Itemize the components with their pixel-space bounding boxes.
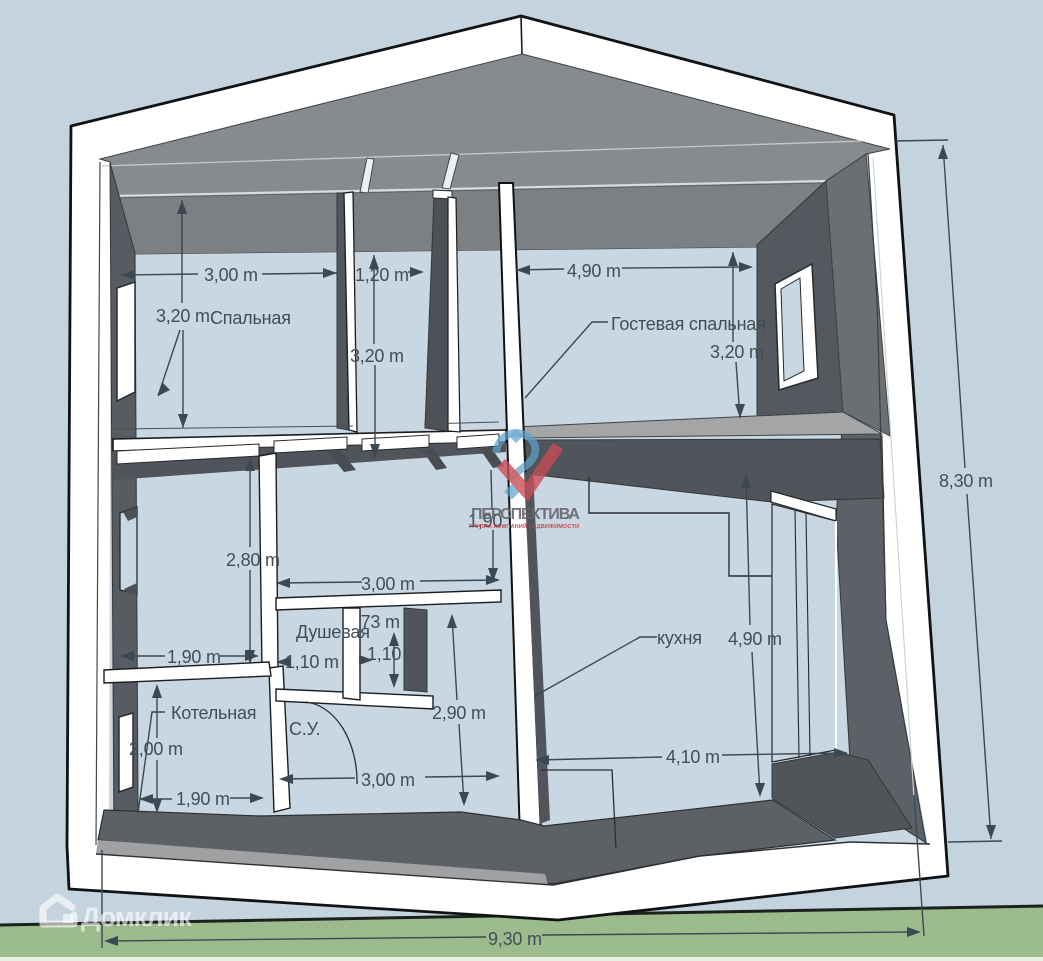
svg-text:4,90 m: 4,90 m [728, 629, 782, 649]
svg-text:1,10: 1,10 [367, 644, 401, 664]
svg-text:С.У.: С.У. [289, 719, 320, 739]
svg-text:Душевая: Душевая [296, 622, 370, 642]
svg-text:3,00 m: 3,00 m [361, 770, 415, 790]
svg-text:8,30 m: 8,30 m [939, 471, 993, 491]
svg-text:Гостевая спальная: Гостевая спальная [611, 314, 766, 334]
svg-text:2,90 m: 2,90 m [432, 703, 486, 723]
svg-text:1,10 m: 1,10 m [285, 652, 339, 672]
svg-text:3,00 m: 3,00 m [204, 265, 258, 285]
svg-text:ГРУППА КОМПАНИЙ НЕДВИЖИМОСТИ: ГРУППА КОМПАНИЙ НЕДВИЖИМОСТИ [469, 522, 579, 530]
svg-text:9,30 m: 9,30 m [488, 929, 542, 949]
svg-text:Домклик: Домклик [81, 902, 192, 932]
svg-text:кухня: кухня [657, 628, 702, 648]
svg-text:4,10 m: 4,10 m [666, 747, 720, 767]
svg-text:3,20 m: 3,20 m [156, 306, 210, 326]
svg-text:4,90 m: 4,90 m [567, 261, 621, 281]
svg-text:2,00 m: 2,00 m [129, 739, 183, 759]
svg-text:3,20 m: 3,20 m [710, 342, 764, 362]
svg-text:1,90 m: 1,90 m [167, 647, 221, 667]
svg-text:1,20 m: 1,20 m [355, 265, 409, 285]
svg-text:Спальная: Спальная [210, 308, 291, 328]
svg-text:3,20 m: 3,20 m [350, 346, 404, 366]
svg-text:3,00 m: 3,00 m [361, 574, 415, 594]
svg-text:1,90 m: 1,90 m [176, 789, 230, 809]
svg-text:ПЕРСПЕКТИВА: ПЕРСПЕКТИВА [471, 506, 580, 523]
svg-text:2,80 m: 2,80 m [226, 550, 280, 570]
svg-text:Котельная: Котельная [171, 703, 256, 723]
